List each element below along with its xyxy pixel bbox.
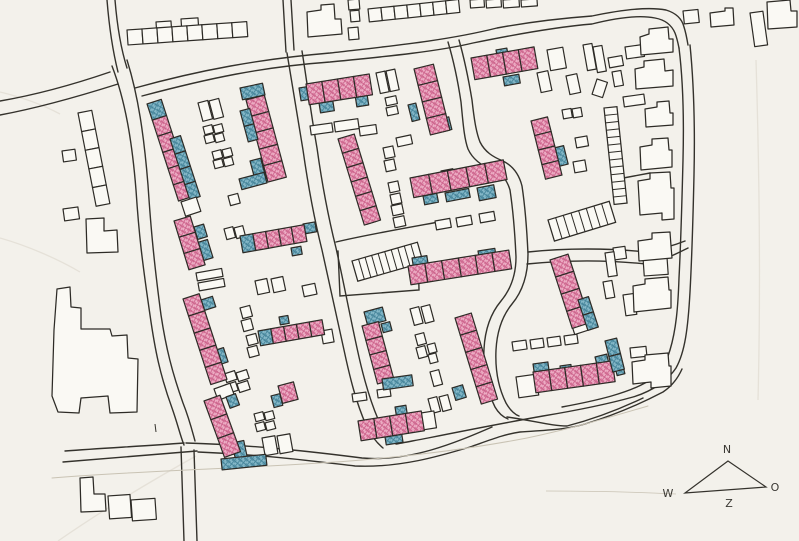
small-building [612, 70, 623, 86]
building-unit [433, 1, 447, 15]
small-building [228, 193, 240, 205]
building-annex [477, 185, 496, 201]
irregular-building [633, 277, 671, 312]
small-building [683, 9, 699, 23]
building-annex [352, 392, 367, 402]
garage-row [604, 107, 627, 205]
irregular-building [767, 0, 797, 29]
building-unit [181, 197, 201, 216]
small-building [63, 207, 80, 221]
street-line-nw-court-path [336, 221, 444, 242]
small-building [572, 107, 582, 117]
small-building [547, 47, 566, 70]
small-building [62, 149, 76, 162]
small-building [623, 94, 645, 107]
compass-north-label: N [723, 443, 731, 456]
small-building [486, 0, 502, 8]
terraced-row [358, 411, 424, 441]
small-building [575, 136, 589, 148]
small-building [108, 494, 132, 518]
small-building [573, 160, 587, 173]
building-unit [446, 0, 460, 14]
small-building [264, 411, 275, 421]
irregular-building [645, 101, 673, 127]
building-unit [157, 27, 173, 43]
building-unit [485, 160, 507, 183]
small-building [383, 146, 395, 159]
small-building [265, 421, 276, 431]
building-unit [407, 4, 421, 18]
small-building [302, 283, 317, 296]
small-building [359, 125, 377, 136]
building-unit [187, 25, 203, 41]
small-building [348, 0, 360, 10]
building-unit [82, 129, 99, 150]
small-building [271, 277, 286, 293]
irregular-building [307, 4, 342, 37]
street-line-bottom-exit-west [181, 447, 184, 541]
building-unit [232, 22, 248, 38]
building-unit [353, 74, 372, 97]
garage-row [548, 201, 616, 241]
building-annex [279, 315, 289, 324]
small-building [396, 135, 413, 147]
terraced-row [258, 320, 325, 346]
small-building [393, 216, 406, 228]
terraced-row [414, 64, 450, 135]
small-building [131, 498, 156, 521]
stray-pen-mark [155, 424, 156, 432]
terraced-row [471, 47, 538, 80]
small-building [241, 318, 254, 331]
small-building [255, 279, 270, 295]
small-building [391, 204, 404, 216]
small-building [435, 218, 451, 229]
street-line-west-approach-south [0, 84, 118, 115]
compass-east-label: O [771, 481, 780, 494]
small-building [415, 333, 427, 346]
map-canvas: N W Z O [0, 0, 799, 541]
building-unit [309, 320, 324, 337]
building-unit [89, 166, 106, 187]
irregular-building [640, 27, 673, 55]
small-building [223, 157, 234, 167]
compass-west-label: W [663, 487, 674, 500]
building-unit [291, 225, 307, 244]
building-unit [217, 23, 233, 39]
building-annex [452, 385, 466, 401]
small-building [562, 108, 572, 118]
building-unit [542, 161, 562, 180]
small-building [237, 381, 250, 393]
street-line-long-field-line [52, 406, 648, 478]
small-building [430, 370, 443, 387]
irregular-building [80, 477, 106, 512]
building-annex [381, 322, 392, 333]
small-building [592, 79, 607, 98]
small-building [456, 215, 472, 226]
terraced-row [181, 197, 201, 216]
scanned-map-document: N W Z O [0, 0, 799, 541]
building-unit [394, 5, 408, 19]
building-unit [127, 29, 143, 45]
terraced-row [368, 0, 460, 22]
terraced-row [78, 110, 110, 206]
irregular-building [638, 232, 672, 261]
irregular-building [86, 218, 118, 253]
small-building [254, 412, 265, 422]
building-unit [202, 24, 218, 40]
small-building [390, 193, 402, 205]
building-annex [291, 246, 302, 256]
building-unit [239, 172, 267, 189]
compass-faint-line [546, 491, 676, 494]
small-building [608, 56, 624, 68]
building-unit [172, 26, 188, 42]
street-line-c2-road-east [302, 51, 396, 443]
small-building [350, 10, 360, 22]
small-building [255, 422, 266, 432]
small-building [277, 434, 293, 454]
irregular-building [640, 138, 672, 170]
paper-crease [756, 60, 759, 400]
small-building [428, 353, 438, 364]
small-building [213, 159, 224, 169]
street-line-bottom-west-south [63, 451, 197, 462]
irregular-building [710, 8, 734, 27]
small-building [537, 71, 552, 93]
small-building [416, 346, 428, 359]
small-building [247, 345, 259, 357]
building-unit [381, 6, 395, 20]
terraced-row [338, 134, 381, 225]
small-building [240, 305, 253, 318]
compass-rose: N W Z O [546, 443, 780, 510]
small-building [384, 159, 396, 172]
building-annex [226, 394, 240, 409]
irregular-building [632, 353, 671, 388]
building-unit [420, 2, 434, 16]
small-building [564, 334, 578, 345]
terraced-row [239, 172, 267, 189]
building-unit [93, 185, 110, 206]
small-building [566, 74, 581, 95]
building-unit [518, 47, 538, 71]
small-building [547, 336, 561, 347]
building-unit [405, 411, 424, 433]
irregular-building [635, 59, 673, 89]
small-building [348, 27, 359, 40]
small-building [521, 0, 537, 7]
building-unit [78, 110, 95, 131]
street-line-bottom-mid-north-2 [507, 398, 643, 426]
compass-south-label: Z [725, 497, 733, 510]
small-building [470, 0, 485, 8]
paper-crease [0, 238, 80, 272]
small-building [512, 340, 527, 351]
small-building [246, 333, 258, 345]
irregular-building [52, 287, 138, 413]
small-building [236, 370, 249, 382]
street-line-left-road-east [115, 0, 127, 68]
irregular-building [638, 172, 674, 220]
small-building [439, 395, 452, 412]
small-building [262, 436, 278, 456]
buildings-layer [52, 0, 797, 521]
building-annex [408, 103, 420, 121]
building-unit [142, 28, 158, 44]
small-building [603, 280, 615, 298]
street-line-bottom-exit-east [194, 450, 197, 541]
street-line-north-stub-east [291, 0, 294, 50]
small-building [386, 106, 398, 116]
terraced-row [408, 250, 512, 285]
building-unit [492, 250, 512, 271]
small-building [503, 0, 520, 8]
building-unit [85, 148, 102, 169]
small-building [214, 133, 225, 143]
small-building [204, 134, 215, 144]
building-unit [368, 8, 382, 22]
small-building [427, 343, 437, 354]
small-building [530, 338, 544, 349]
street-line-north-stub-west [283, 0, 286, 52]
compass-triangle-icon [685, 461, 766, 493]
small-building [334, 119, 359, 132]
small-building [479, 211, 495, 222]
small-building [750, 11, 768, 46]
building-annex [503, 74, 520, 86]
small-building [388, 181, 400, 193]
street-line-bottom-west-north [65, 443, 184, 451]
small-building [385, 96, 397, 106]
